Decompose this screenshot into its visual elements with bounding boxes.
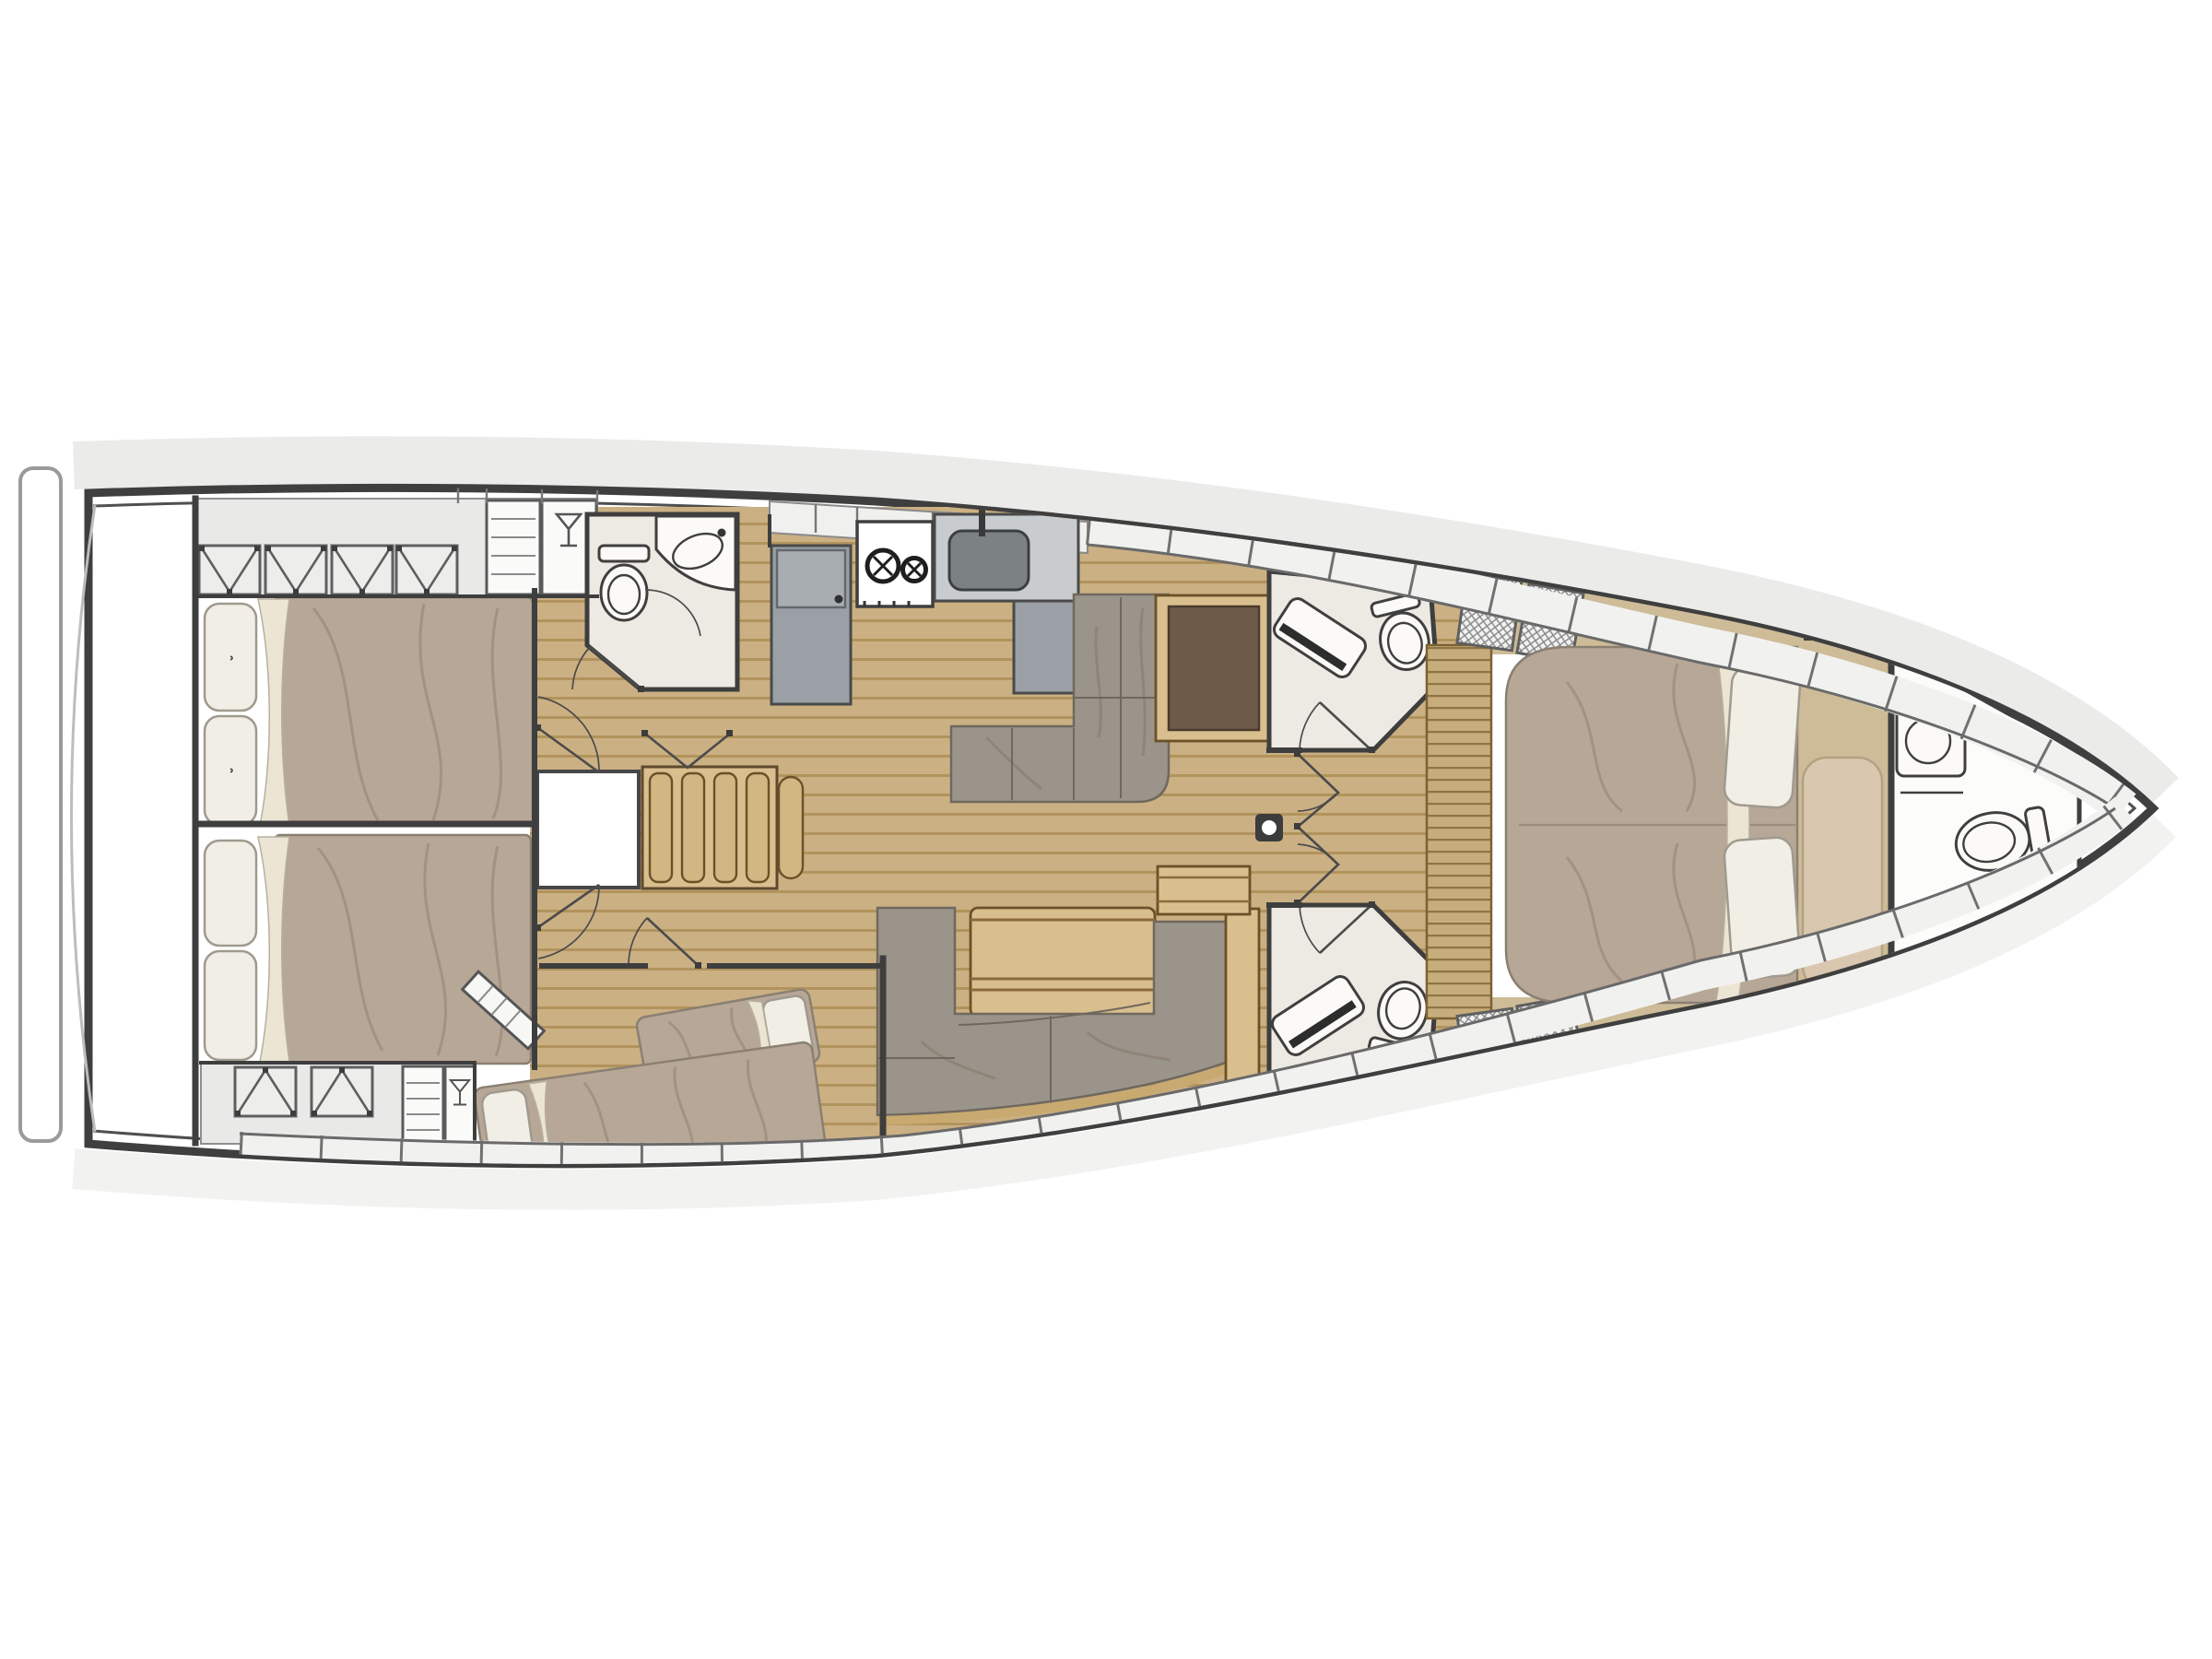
stove-burner-icon — [867, 550, 899, 582]
hatch-panel — [537, 771, 639, 888]
pillow — [205, 841, 256, 946]
stairs-icon — [642, 767, 803, 888]
transom-platform — [20, 468, 61, 1141]
shelf-locker — [403, 1066, 443, 1146]
sideboard-top — [1158, 866, 1250, 914]
salon-table — [971, 908, 1155, 1017]
pillow — [205, 951, 256, 1060]
sink — [935, 505, 1078, 601]
stove-burner-icon — [903, 559, 926, 582]
floor-plan-page — [0, 0, 2212, 1659]
pillow — [1724, 666, 1801, 809]
shelf-locker — [487, 500, 540, 594]
mast-post-icon — [1255, 814, 1283, 841]
side-table — [1226, 909, 1259, 1086]
sideboard-walnut — [1156, 595, 1272, 741]
galley-cabinet — [1014, 601, 1077, 693]
pillow — [205, 716, 256, 825]
pillow — [205, 604, 256, 711]
slat-bench — [1427, 645, 1491, 1018]
yacht-floor-plan — [0, 0, 2212, 1659]
refrigerator — [771, 546, 851, 704]
toilet-icon — [599, 546, 649, 620]
stove — [857, 522, 933, 606]
glass-locker — [445, 1066, 475, 1146]
